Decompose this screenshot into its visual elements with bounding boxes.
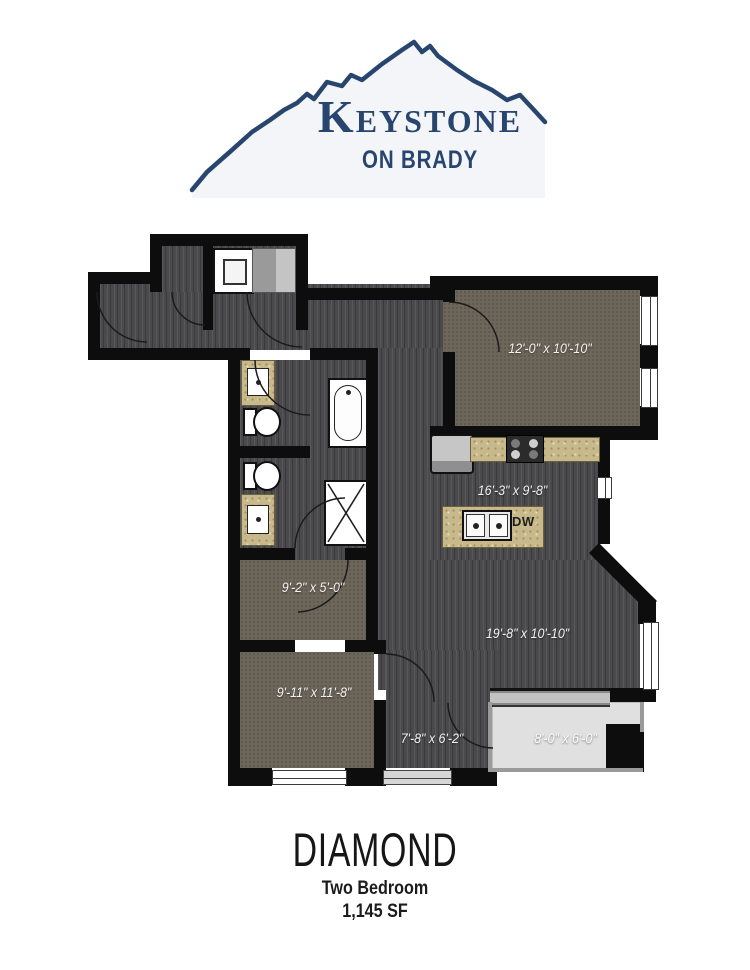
plan-name: DIAMOND xyxy=(105,822,645,877)
walk-in-closet-dims: 9'-2" x 5'-0" xyxy=(244,580,382,595)
floor-plan-sheet: Keystone ON BRADY xyxy=(0,0,750,970)
door-swing-arcs xyxy=(97,292,499,748)
logo-subtitle: ON BRADY xyxy=(338,146,502,175)
plan-area: 1,145 SF xyxy=(56,901,694,923)
living-room-dims: 19'-8" x 10'-10" xyxy=(433,626,622,641)
balcony-dims: 8'-0" x 6'-0" xyxy=(503,731,627,746)
logo: Keystone ON BRADY xyxy=(0,0,750,210)
doors-and-angled-wall-overlay xyxy=(85,230,665,790)
bedroom-2-dims: 9'-11" x 11'-8" xyxy=(235,685,393,700)
bedroom-1-dims: 12'-0" x 10'-10" xyxy=(463,341,638,356)
logo-name: Keystone xyxy=(285,90,555,143)
entry-dims: 7'-8" x 6'-2" xyxy=(377,731,487,746)
plan-bedrooms: Two Bedroom xyxy=(56,878,694,900)
kitchen-dims: 16'-3" x 9'-8" xyxy=(432,483,593,498)
